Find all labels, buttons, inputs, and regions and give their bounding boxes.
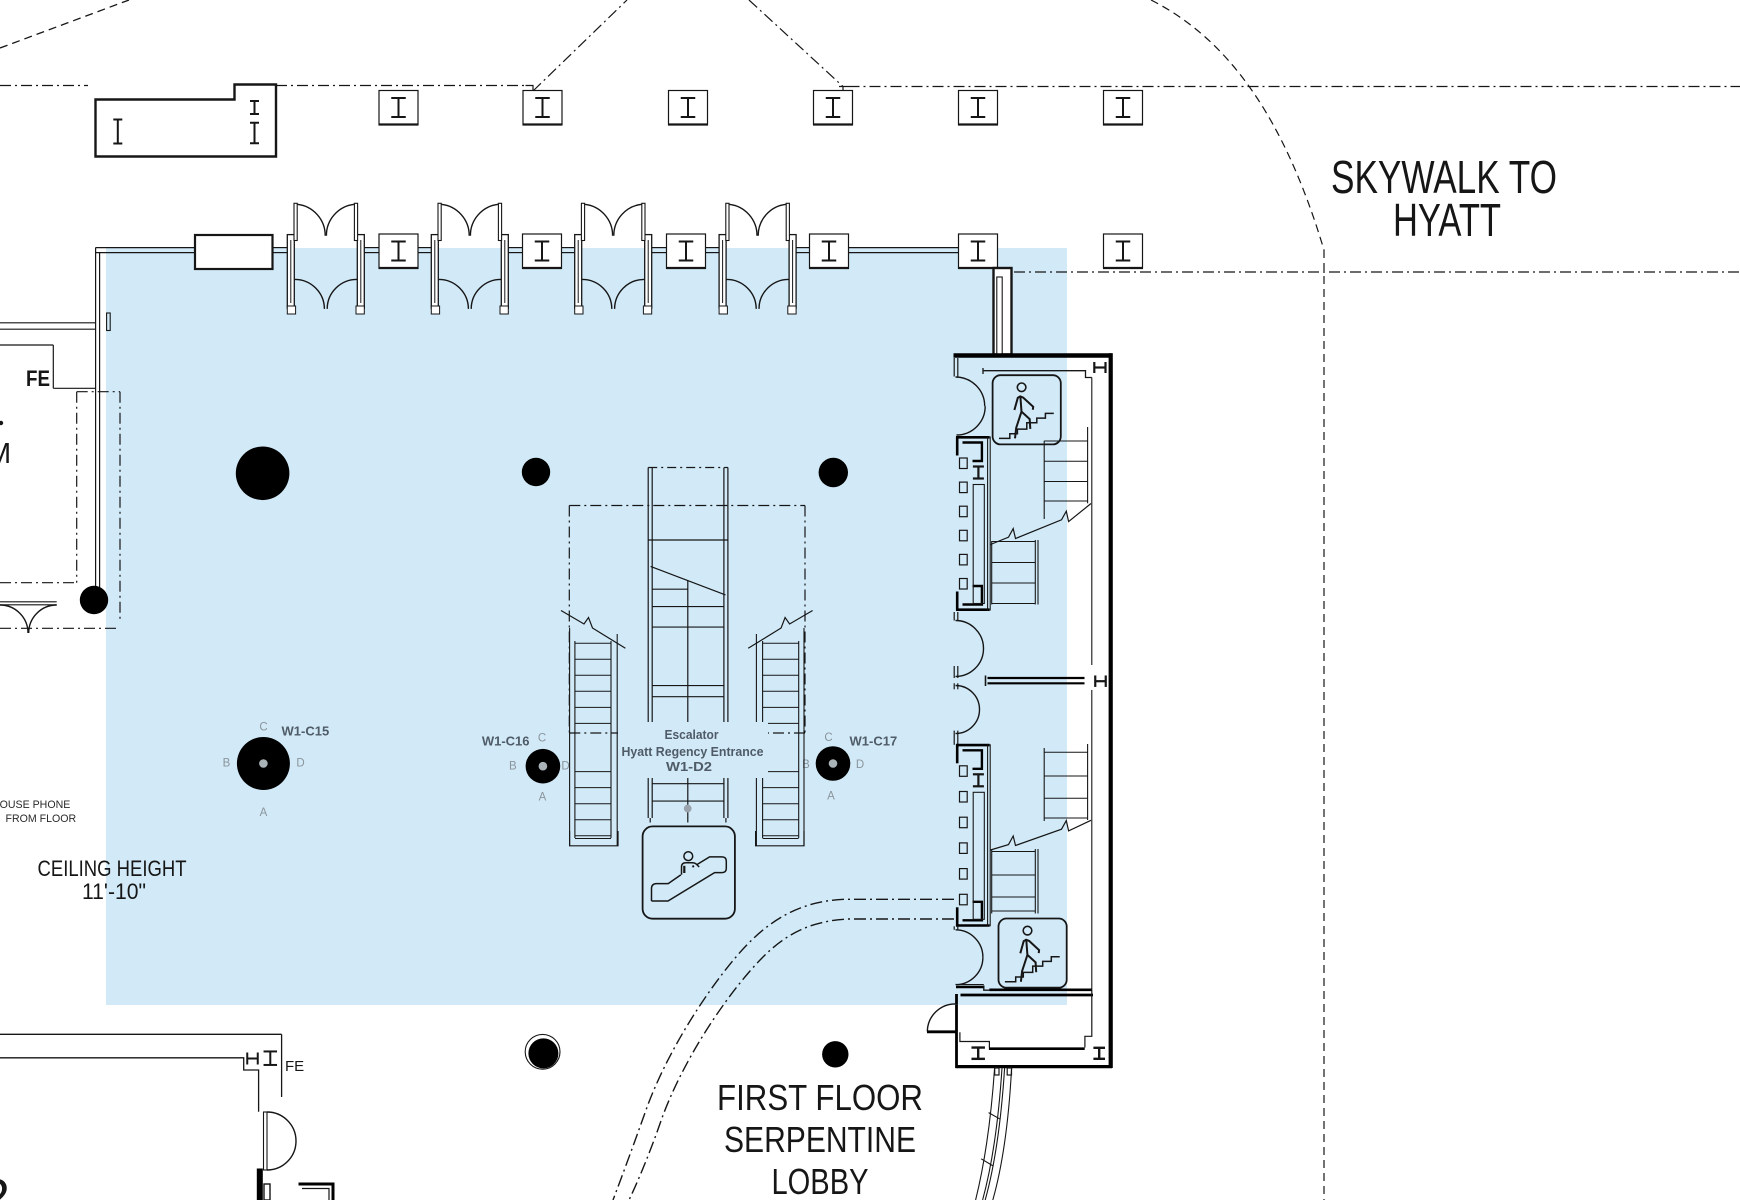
svg-text:C: C	[538, 733, 546, 745]
svg-text:11'-10": 11'-10"	[82, 879, 146, 904]
svg-text:CEILING HEIGHT: CEILING HEIGHT	[38, 856, 187, 881]
svg-text:FIRST FLOOR: FIRST FLOOR	[717, 1077, 923, 1118]
svg-text:HYATT: HYATT	[1393, 194, 1501, 246]
svg-text:B: B	[223, 758, 231, 770]
svg-text:2: 2	[0, 1169, 10, 1200]
svg-text:Hyatt Regency Entrance: Hyatt Regency Entrance	[622, 744, 764, 759]
svg-text:B: B	[802, 759, 810, 771]
svg-text:C: C	[824, 732, 832, 744]
svg-text:W1-C15: W1-C15	[282, 724, 330, 739]
svg-text:D: D	[296, 758, 304, 770]
svg-text:A: A	[260, 807, 268, 819]
svg-text:B: B	[509, 761, 517, 773]
svg-text:D: D	[561, 761, 569, 773]
svg-text:Escalator: Escalator	[665, 727, 719, 742]
svg-text:HOUSE PHONE: HOUSE PHONE	[0, 799, 70, 811]
svg-text:D: D	[856, 759, 864, 771]
svg-text:FE: FE	[285, 1058, 304, 1075]
svg-text:SERPENTINE: SERPENTINE	[724, 1119, 916, 1160]
svg-text:LOBBY: LOBBY	[772, 1161, 869, 1200]
svg-text:W1-C16: W1-C16	[482, 734, 530, 749]
svg-text:A: A	[827, 791, 835, 803]
svg-text:FE: FE	[26, 366, 50, 391]
svg-text:A: A	[539, 792, 547, 804]
svg-text:M: M	[0, 438, 11, 470]
svg-text:W1-D2: W1-D2	[666, 759, 712, 774]
svg-text:W1-C17: W1-C17	[850, 734, 898, 749]
svg-text:C: C	[259, 722, 267, 734]
svg-text:FROM FLOOR: FROM FLOOR	[6, 813, 77, 825]
